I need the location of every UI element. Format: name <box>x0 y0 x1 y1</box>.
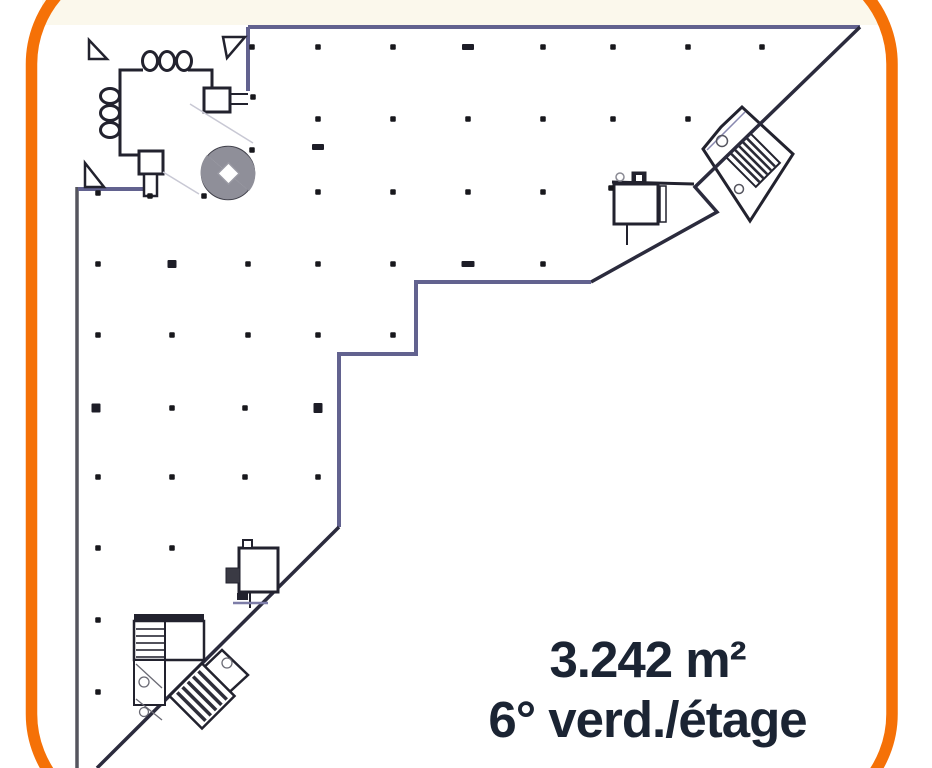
column-dot <box>390 189 396 195</box>
column-dot <box>759 44 765 50</box>
column-dot <box>242 474 248 480</box>
column-dot <box>249 147 255 153</box>
column-dot <box>390 261 396 267</box>
column-dot <box>169 332 175 338</box>
column-dot <box>95 617 101 623</box>
column-dot <box>169 405 175 411</box>
column-dot <box>390 44 396 50</box>
column-dot <box>315 261 321 267</box>
shaft-icon <box>226 568 240 583</box>
area-size-label: 3.242 m² <box>450 630 845 690</box>
column-dot <box>245 261 251 267</box>
column-dot <box>315 332 321 338</box>
column-dot <box>95 190 101 196</box>
column-dot <box>95 474 101 480</box>
column-dot <box>315 474 321 480</box>
column-dot <box>147 193 153 199</box>
column-dot <box>685 44 691 50</box>
column-dot <box>540 44 546 50</box>
column-dot <box>168 260 177 268</box>
column-dot <box>169 545 175 551</box>
column-dot <box>540 189 546 195</box>
column-dot <box>462 261 475 267</box>
column-dot <box>314 403 323 413</box>
column-dot <box>390 332 396 338</box>
column-dot <box>95 689 101 695</box>
floor-label: 6° verd./étage <box>450 690 845 750</box>
column-dot <box>242 405 248 411</box>
column-dot <box>465 116 471 122</box>
page: 3.242 m² 6° verd./étage <box>0 0 932 768</box>
column-dot <box>540 116 546 122</box>
top-tint-band <box>42 0 878 25</box>
spiral-staircase-circle <box>201 147 256 200</box>
column-dot <box>462 44 474 50</box>
column-dot <box>201 193 207 199</box>
column-dot <box>315 116 321 122</box>
column-dot <box>465 189 471 195</box>
column-dot <box>610 116 616 122</box>
column-dot <box>95 332 101 338</box>
column-dot <box>169 474 175 480</box>
column-dot <box>95 545 101 551</box>
column-dot <box>95 261 101 267</box>
column-dot <box>249 44 255 50</box>
column-dot <box>245 332 251 338</box>
column-dot <box>608 185 614 191</box>
column-dot <box>315 189 321 195</box>
column-dot <box>685 116 691 122</box>
column-dot <box>312 144 324 150</box>
column-dot <box>92 404 101 413</box>
column-dot <box>315 44 321 50</box>
caption: 3.242 m² 6° verd./étage <box>450 630 845 750</box>
column-dot <box>610 44 616 50</box>
column-dot <box>250 94 256 100</box>
column-dot <box>540 261 546 267</box>
column-dot <box>390 116 396 122</box>
